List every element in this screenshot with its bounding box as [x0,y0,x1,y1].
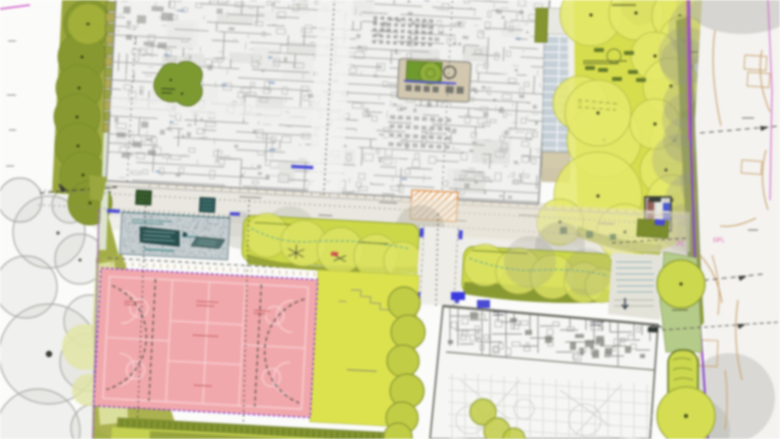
svg-text:GFL: GFL [713,238,725,244]
